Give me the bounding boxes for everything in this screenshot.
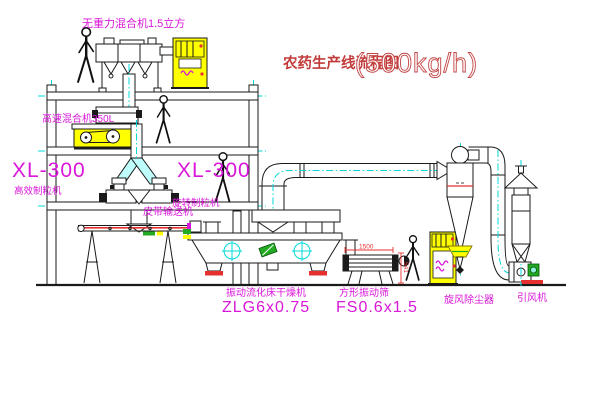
person-figure-roof [78, 28, 93, 82]
label-cyclone-name: 旋风除尘器 [444, 293, 494, 306]
label-fan-name: 引风机 [517, 291, 547, 304]
sieve-length-dimension: 1500 [359, 244, 374, 251]
label-high-speed-mixer: 高速混合机350L [42, 112, 115, 125]
control-cabinet-right [428, 232, 458, 284]
label-gravity-mixer: 无重力混合机1.5立方 [82, 16, 185, 30]
sieve-height-dimension: 541 [402, 262, 409, 273]
vibrating-sieve: 1500 541 [343, 240, 409, 284]
label-sieve-name: 方形振动筛 [339, 286, 389, 299]
diagram-capacity: (500kg/h) [355, 48, 478, 78]
label-dryer-name: 振动流化床干燥机 [226, 286, 306, 299]
fan-suction-pipe [469, 147, 511, 282]
label-sieve-model: FS0.6x1.5 [336, 299, 418, 316]
induced-draft-fan [509, 262, 543, 284]
person-figure-floor2 [157, 96, 170, 143]
label-belt-conveyor: 皮带输送机 [143, 205, 193, 218]
label-dryer-model: ZLG6x0.75 [222, 299, 310, 316]
label-xl300-left-name: 高效制粒机 [14, 185, 62, 197]
flow-diagram-page: 1500 541 [0, 0, 600, 403]
diagram-canvas: 1500 541 [0, 0, 600, 403]
label-xl300-left-model: XL-300 [12, 159, 86, 182]
label-xl300-mid-model: XL-300 [177, 159, 251, 182]
control-cabinet-top [171, 38, 209, 88]
fluid-bed-dryer [183, 210, 342, 276]
